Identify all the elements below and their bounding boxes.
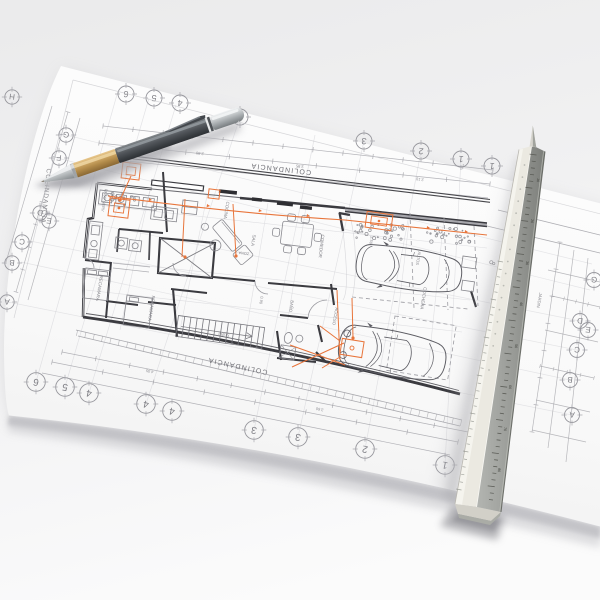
svg-text:2.80: 2.80	[195, 150, 204, 156]
svg-text:E: E	[585, 325, 591, 335]
svg-text:60: 60	[508, 385, 512, 389]
svg-text:80: 80	[497, 468, 501, 472]
svg-text:B: B	[9, 258, 15, 268]
svg-text:50: 50	[514, 344, 518, 348]
svg-text:30: 30	[525, 261, 529, 265]
svg-text:G: G	[590, 275, 597, 285]
svg-text:G: G	[62, 130, 69, 140]
svg-text:40: 40	[519, 302, 523, 306]
svg-text:20: 20	[530, 219, 534, 223]
svg-text:B: B	[567, 375, 573, 385]
svg-text:3.95: 3.95	[295, 163, 304, 169]
svg-text:10: 10	[536, 178, 540, 182]
svg-text:70: 70	[503, 427, 507, 431]
svg-text:E: E	[46, 216, 52, 226]
